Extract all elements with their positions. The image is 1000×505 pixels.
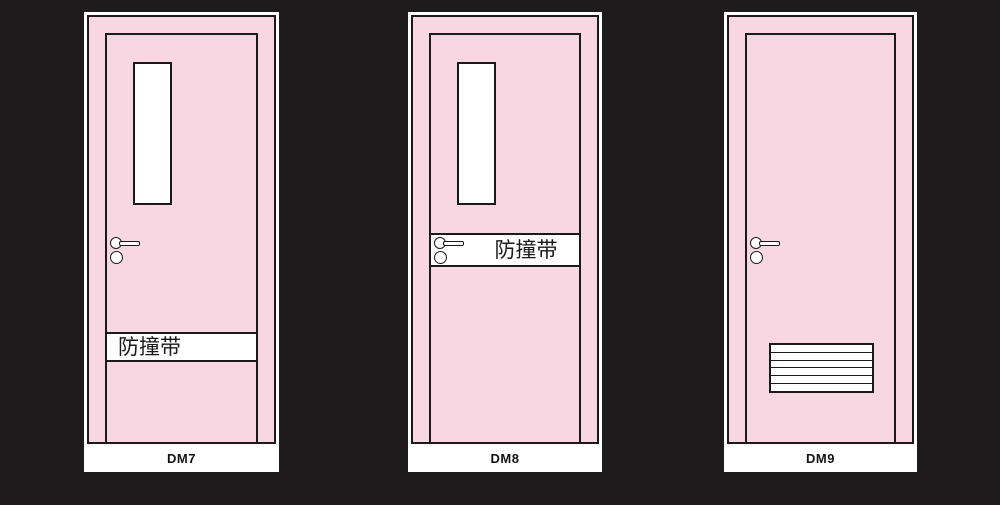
door-leaf: 防撞带 <box>105 33 258 442</box>
door-label: DM7 <box>84 444 279 472</box>
louver-slat <box>771 376 872 384</box>
door-frame: 防撞带 <box>411 15 599 444</box>
door-figure-dm9: DM9 <box>724 12 917 472</box>
door-leaf: 防撞带 <box>429 33 581 442</box>
anti-collision-band-label: 防撞带 <box>453 240 558 261</box>
louver-slat <box>771 384 872 391</box>
lock-knob-icon <box>110 251 123 264</box>
door-figure-dm7: 防撞带 DM7 <box>84 12 279 472</box>
door-label: DM9 <box>724 444 917 472</box>
louver-slat <box>771 353 872 361</box>
door-handle-icon <box>750 235 784 265</box>
door-handle-icon <box>434 235 468 265</box>
lever-bar-icon <box>119 241 140 246</box>
door-frame: 防撞带 <box>87 15 276 444</box>
door-handle-icon <box>110 235 144 265</box>
door-leaf <box>745 33 896 442</box>
door-label: DM8 <box>408 444 602 472</box>
door-figure-dm8: 防撞带 DM8 <box>408 12 602 472</box>
door-window <box>133 62 172 205</box>
lock-knob-icon <box>434 251 447 264</box>
drawing-canvas: { "page": { "background_color": "#1d1b1c… <box>0 0 1000 505</box>
anti-collision-band-label: 防撞带 <box>107 337 181 358</box>
louver-slat <box>771 345 872 353</box>
door-window <box>457 62 496 205</box>
louver-slat <box>771 368 872 376</box>
door-label-text: DM9 <box>806 451 835 466</box>
lock-knob-icon <box>750 251 763 264</box>
lever-bar-icon <box>759 241 780 246</box>
louver-slat <box>771 361 872 369</box>
door-label-text: DM8 <box>491 451 520 466</box>
door-frame <box>727 15 914 444</box>
louver-vent <box>769 343 874 393</box>
anti-collision-band: 防撞带 <box>107 332 256 362</box>
door-label-text: DM7 <box>167 451 196 466</box>
lever-bar-icon <box>443 241 464 246</box>
